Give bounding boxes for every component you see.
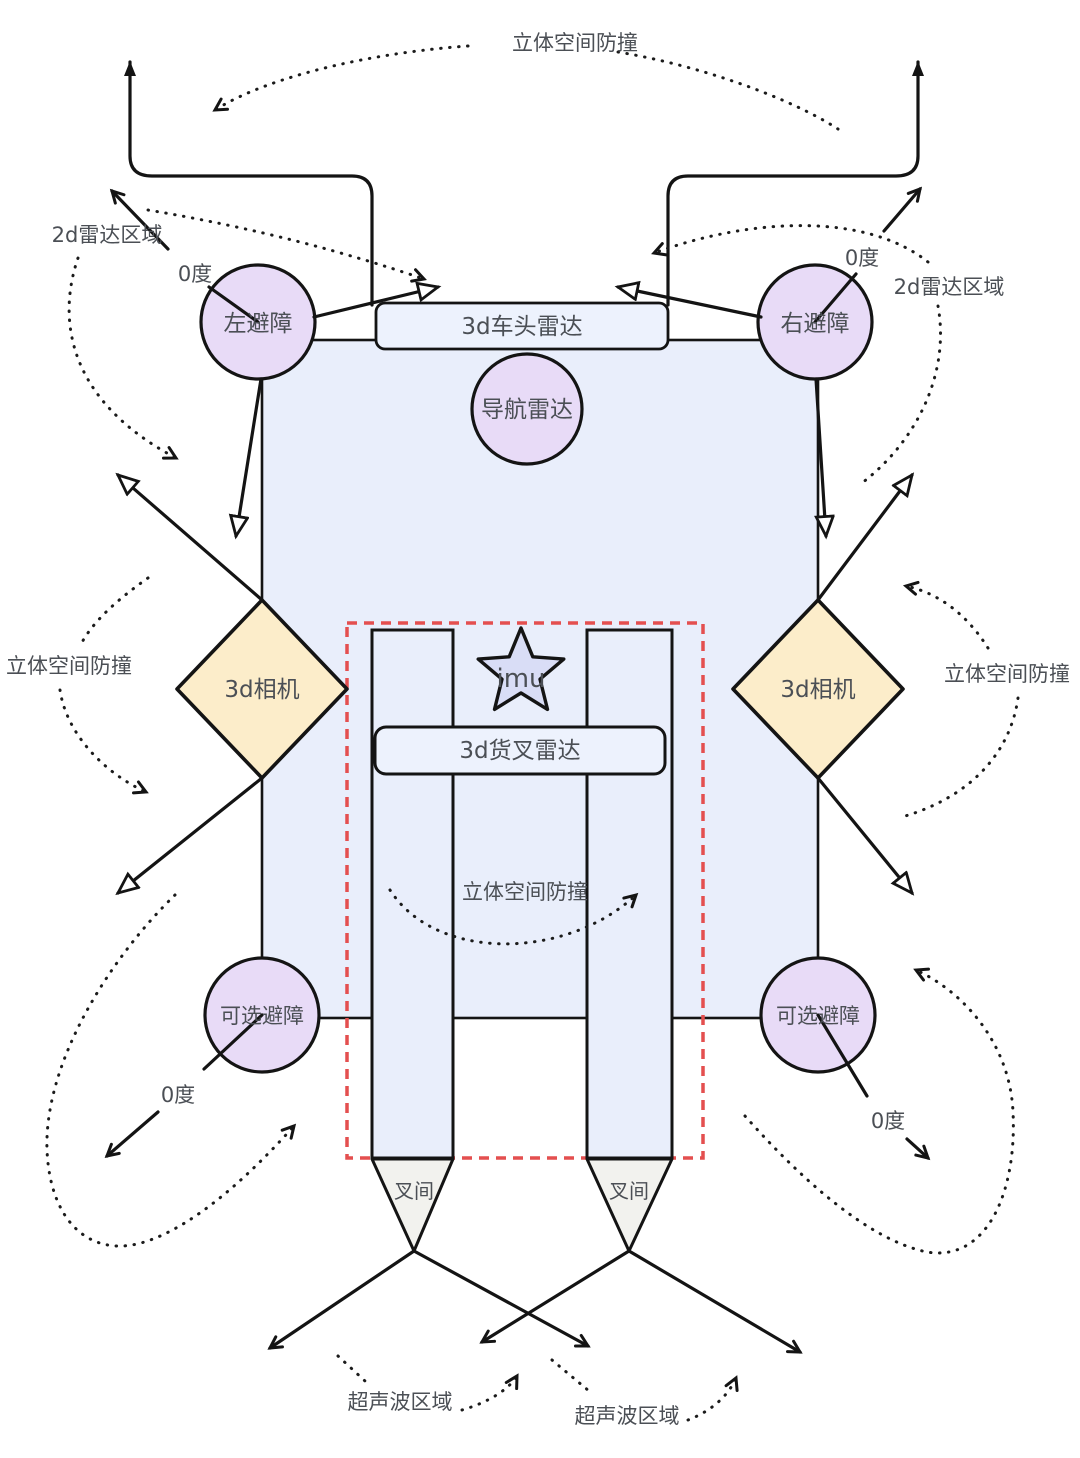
label-zero-deg-top-left: 0度	[178, 262, 212, 286]
camera-right-upper-fov-arrow	[818, 475, 912, 600]
label-avoid-right: 右避障	[781, 311, 850, 337]
label-zero-deg-bottom-left: 0度	[161, 1083, 195, 1107]
radar2d-right-arc-outer	[862, 306, 941, 483]
ultrasonic-left-arc-start	[338, 1356, 365, 1381]
label-front-radar: 3d车头雷达	[461, 314, 582, 340]
ultrasonic-left-arc-end	[462, 1376, 517, 1410]
fork-tip-left	[372, 1159, 453, 1251]
zero-deg-arrow-bottom-left	[107, 1112, 158, 1156]
label-stereo-collision-left: 立体空间防撞	[6, 654, 132, 678]
ultrasonic-right-arc-start	[552, 1360, 589, 1391]
label-camera-left: 3d相机	[224, 677, 299, 703]
fork-tine-left	[372, 630, 453, 1158]
label-radar2d-right: 2d雷达区域	[894, 275, 1005, 299]
stereo-right-arc-upper	[906, 586, 988, 648]
camera-left-upper-fov-arrow	[118, 475, 262, 600]
ultrasonic-beam-right-outer	[629, 1251, 800, 1352]
stereo-top-arc-left	[215, 46, 468, 110]
zero-deg-arrow-bottom-right	[907, 1139, 928, 1158]
radar2d-right-arc-inner	[654, 226, 928, 262]
label-nav-radar: 导航雷达	[481, 397, 573, 423]
fork-tine-right	[587, 630, 672, 1158]
label-ultrasonic-left: 超声波区域	[348, 1390, 453, 1414]
label-avoid-left: 左避障	[224, 311, 293, 337]
vehicle-body-group	[262, 340, 818, 1251]
left-avoid-down-arrow	[236, 379, 261, 536]
camera-right-lower-fov-arrow	[818, 778, 912, 893]
label-stereo-collision-top: 立体空间防撞	[512, 31, 638, 55]
ultrasonic-beam-left-outer	[270, 1251, 414, 1348]
diagram-svg: 立体空间防撞 2d雷达区域 2d雷达区域 0度 0度 左避障 右避障 3d车头雷…	[0, 0, 1080, 1458]
ultrasonic-right-arc-end	[688, 1378, 736, 1420]
label-zero-deg-bottom-right: 0度	[871, 1109, 905, 1133]
label-camera-right: 3d相机	[780, 677, 855, 703]
zero-deg-arrow-top-right	[884, 189, 920, 231]
label-stereo-collision-right: 立体空间防撞	[944, 662, 1070, 686]
label-fork-gap-left: 叉间	[394, 1179, 434, 1203]
label-optional-avoid-right: 可选避障	[776, 1004, 860, 1028]
label-zero-deg-top-right: 0度	[845, 246, 879, 270]
label-ultrasonic-right: 超声波区域	[575, 1404, 680, 1428]
sensor-layout-diagram: 立体空间防撞 2d雷达区域 2d雷达区域 0度 0度 左避障 右避障 3d车头雷…	[0, 0, 1080, 1458]
label-fork-gap-right: 叉间	[609, 1179, 649, 1203]
camera-left-lower-fov-arrow	[118, 778, 262, 893]
radar2d-left-arc-outer	[69, 258, 176, 458]
fork-tip-right	[587, 1159, 672, 1251]
stereo-left-arc-upper	[80, 578, 148, 646]
label-imu: imu	[496, 664, 545, 694]
label-stereo-collision-center: 立体空间防撞	[462, 880, 588, 904]
stereo-right-arc-lower	[902, 698, 1018, 817]
label-optional-avoid-left: 可选避障	[220, 1004, 304, 1028]
stereo-top-arc-right	[618, 52, 838, 129]
stereo-left-arc-lower	[60, 690, 146, 792]
label-fork-radar: 3d货叉雷达	[459, 738, 580, 764]
label-radar2d-left: 2d雷达区域	[52, 223, 163, 247]
